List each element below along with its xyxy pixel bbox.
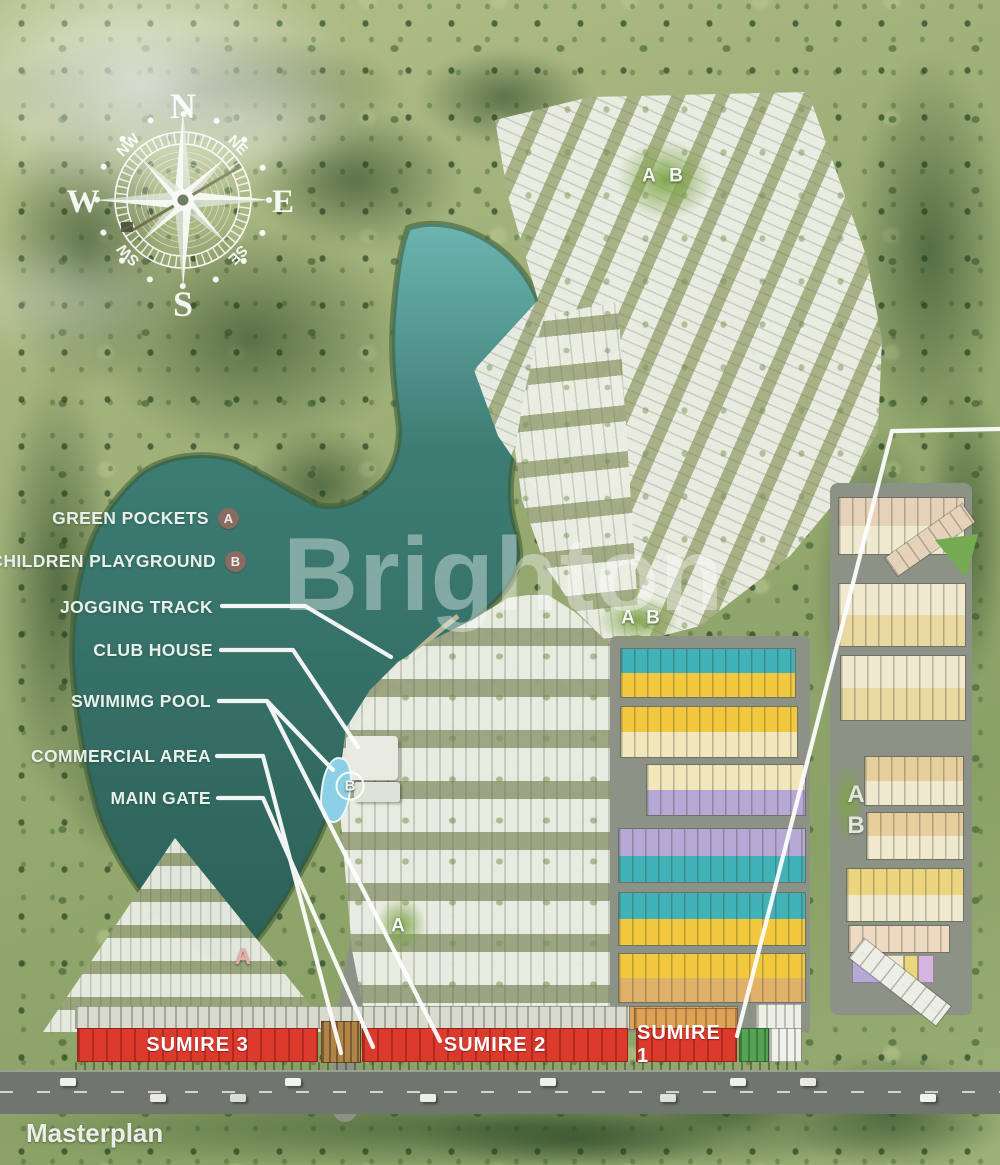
- legend-item-swimimg-pool: SWIMIMG POOL: [71, 689, 211, 713]
- legend-item-jogging-track: JOGGING TRACK: [60, 595, 213, 619]
- map-marker-a: A: [391, 917, 405, 936]
- map-marker-a: A: [621, 609, 635, 628]
- legend-item-main-gate: MAIN GATE: [111, 786, 212, 810]
- compass-needle-base: [121, 222, 133, 232]
- legend-badge: B: [225, 551, 246, 572]
- boundary-line-east: [737, 429, 1000, 1036]
- map-marker-b: B: [646, 609, 660, 628]
- map-marker-b: B: [847, 814, 864, 838]
- legend-label: JOGGING TRACK: [60, 597, 213, 618]
- callout-line-main-gate: [218, 798, 373, 1047]
- legend-label: GREEN POCKETS: [52, 508, 209, 529]
- legend-label: COMMERCIAL AREA: [31, 746, 211, 767]
- compass-s: S: [173, 284, 193, 324]
- legend-item-commercial-area: COMMERCIAL AREA: [31, 744, 211, 768]
- compass-nw: NW: [114, 130, 144, 160]
- legend-label: SWIMIMG POOL: [71, 691, 211, 712]
- compass-rose-icon: N E S W NW NE SW SE: [53, 65, 313, 335]
- map-marker-b: B: [669, 167, 683, 186]
- legend-badge: A: [218, 508, 239, 529]
- map-marker-b: B: [336, 772, 365, 801]
- compass-n: N: [170, 86, 196, 126]
- compass-ne: NE: [224, 132, 251, 159]
- map-marker-a: A: [235, 946, 251, 968]
- map-marker-a: A: [642, 167, 656, 186]
- legend-label: CLUB HOUSE: [93, 640, 213, 661]
- callout-line-commercial-area: [217, 756, 341, 1053]
- legend-item-children-playground: CHILDREN PLAYGROUNDB: [0, 549, 246, 573]
- legend-label: MAIN GATE: [111, 788, 212, 809]
- masterplan-map: SUMIRE 3SUMIRE 2SUMIRE 1: [0, 0, 1000, 1165]
- callout-line-club-house: [221, 650, 358, 747]
- map-marker-a: A: [847, 783, 864, 807]
- legend-item-club-house: CLUB HOUSE: [93, 638, 213, 662]
- callout-line-swimming-pool: [219, 701, 333, 770]
- legend-item-green-pockets: GREEN POCKETSA: [52, 506, 239, 530]
- compass-w: W: [67, 184, 100, 220]
- legend-label: CHILDREN PLAYGROUND: [0, 551, 216, 572]
- compass-e: E: [272, 184, 294, 220]
- page-title: Masterplan: [26, 1118, 163, 1149]
